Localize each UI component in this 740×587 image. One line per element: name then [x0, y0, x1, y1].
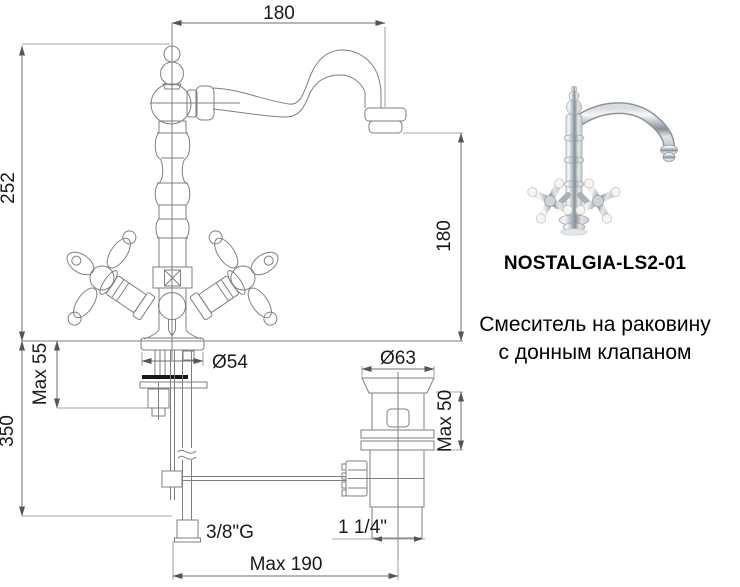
spout-outlet-flange — [365, 108, 406, 121]
product-description-line1: Смеситель на раковину — [450, 311, 740, 339]
dim-max-deck-label: Max 55 — [30, 343, 51, 405]
product-description-line2: с донным клапаном — [450, 339, 740, 367]
dim-max-reach: Max 190 — [173, 541, 398, 580]
product-photo-faucet — [527, 86, 678, 235]
dim-drain-thread-label: 1 1/4" — [338, 517, 387, 538]
product-photo — [502, 38, 707, 248]
under-counter-parts — [140, 350, 346, 542]
photo-finial — [567, 100, 582, 115]
pipe-break — [178, 450, 196, 453]
supply-thread-label: 3/8"G — [206, 522, 254, 543]
dim-base-diameter-label: Ø54 — [212, 352, 248, 373]
dim-supply-drop: 350 — [0, 341, 172, 516]
mounting-washer — [140, 382, 207, 388]
spout-lower-edge — [213, 75, 365, 117]
dim-max-reach-label: Max 190 — [250, 554, 323, 575]
rod-clamp — [162, 471, 182, 487]
dim-drain-max-deck-label: Max 50 — [435, 390, 456, 452]
dim-spout-height-label: 180 — [434, 220, 455, 252]
dim-max-deck: Max 55 — [30, 341, 150, 408]
dim-drain-max-deck: Max 50 — [435, 390, 463, 452]
dim-total-height-label: 252 — [0, 172, 19, 204]
cross-handle-right — [166, 209, 308, 355]
dim-spout-reach: 180 — [172, 3, 385, 107]
product-model: NOSTALGIA-LS2-01 — [450, 253, 740, 275]
dim-base-diameter: Ø54 — [142, 352, 248, 373]
supply-connector — [177, 520, 198, 538]
spec-sheet: 180 252 180 Ø54 Max 55 350 3 — [0, 0, 740, 587]
dim-supply-drop-label: 350 — [0, 415, 18, 447]
dim-spout-reach-label: 180 — [263, 3, 295, 24]
cross-handle-left — [37, 209, 179, 355]
base-gasket — [142, 375, 188, 379]
technical-drawing: 180 252 180 Ø54 Max 55 350 3 — [0, 0, 500, 587]
spout-upper-edge — [213, 50, 381, 104]
dim-drain-flange-label: Ø63 — [380, 348, 416, 369]
photo-column — [566, 114, 582, 216]
faucet-front-view — [141, 23, 406, 360]
product-caption: NOSTALGIA-LS2-01 Смеситель на раковину с… — [450, 253, 740, 367]
